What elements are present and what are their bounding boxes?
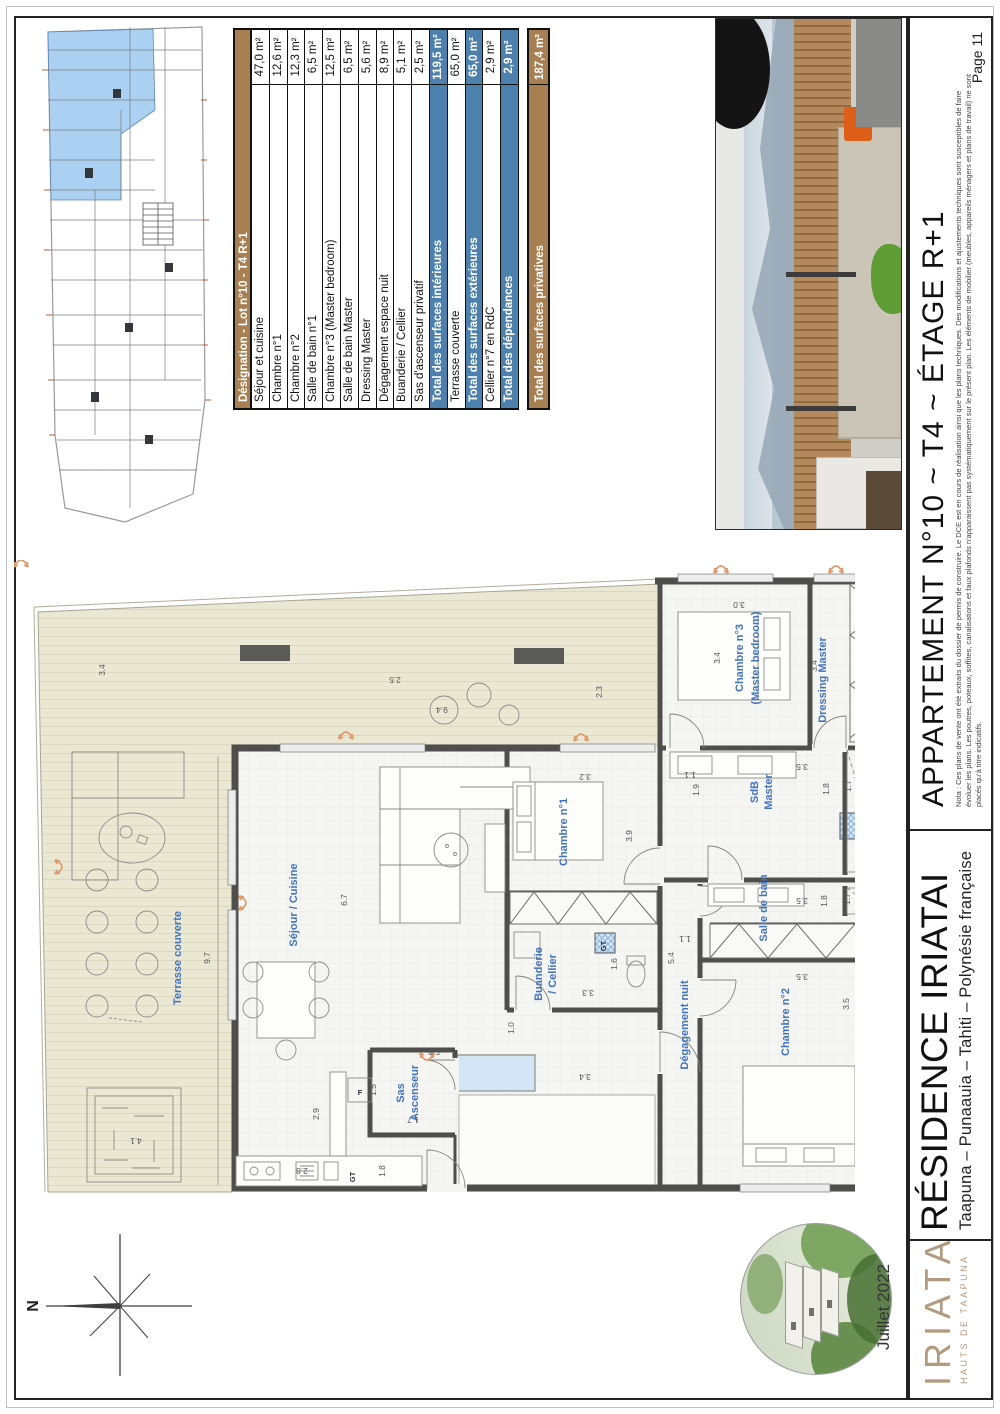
surface-row-label: Chambre n°1 bbox=[270, 85, 287, 408]
rotated-sheet: N Désignation - Lot n°10 - T4 R+1 Séjour… bbox=[0, 0, 1000, 1414]
date-label: Juillet 2022 bbox=[874, 1264, 894, 1350]
room-label: Chambre n°1 bbox=[558, 798, 570, 866]
surface-table-row: Terrasse couverte65,0 m² bbox=[448, 28, 466, 410]
apartment-title: APPARTEMENT N°10 ~ T4 ~ ÉTAGE R+1 bbox=[917, 18, 951, 807]
surface-table-row: Dressing Master5,6 m² bbox=[359, 28, 377, 410]
dimension-label: 6.7 bbox=[339, 894, 349, 906]
nota-line: placés qu'à titre indicatifs. bbox=[974, 62, 984, 807]
surface-table-row: Total des dépendances2,9 m² bbox=[501, 28, 519, 410]
surface-row-label: Dressing Master bbox=[359, 85, 376, 408]
surface-row-value: 12,3 m² bbox=[288, 30, 305, 85]
iriatai-logo-subtitle: HAUTS DE TAAPUNA bbox=[959, 1241, 969, 1384]
dimension-label: 1.7 bbox=[843, 780, 853, 792]
surface-table-rows: Séjour et cuisine47,0 m²Chambre n°112,6 … bbox=[252, 28, 550, 410]
room-label: Dressing Master bbox=[817, 636, 829, 722]
surface-row-value: 2,9 m² bbox=[483, 30, 500, 85]
surface-row-value: 187,4 m² bbox=[529, 30, 548, 85]
apartment-title-box: APPARTEMENT N°10 ~ T4 ~ ÉTAGE R+1 Nota :… bbox=[908, 16, 993, 831]
dimension-label: 3.2 bbox=[579, 772, 591, 782]
dimension-label: 4.1 bbox=[130, 1136, 142, 1146]
tag-label: GT bbox=[854, 823, 855, 834]
surface-table-row: Dégagement espace nuit8,9 m² bbox=[377, 28, 395, 410]
surface-table-row: Chambre n°112,6 m² bbox=[270, 28, 288, 410]
dimension-label: 1.0 bbox=[506, 1022, 516, 1034]
tag-label: GT bbox=[348, 1171, 357, 1182]
room-label: Salle de bain bbox=[758, 874, 770, 942]
floor-plan-svg: Séjour / CuisineChambre n°1Buanderie/ Ce… bbox=[14, 560, 855, 1215]
surface-row-label: Séjour et cuisine bbox=[252, 85, 269, 408]
elevator-shaft bbox=[455, 1055, 535, 1091]
surface-row-value: 12,5 m² bbox=[323, 30, 340, 85]
surface-row-label: Chambre n°2 bbox=[288, 85, 305, 408]
dimension-label: 3.9 bbox=[624, 830, 634, 842]
dimension-label: 2.8 bbox=[296, 1166, 308, 1176]
north-label: N bbox=[25, 1300, 42, 1312]
room-label: Master bbox=[763, 774, 775, 810]
surface-row-label: Sas d'ascenseur privatif bbox=[412, 85, 429, 408]
page-number: Page 11 bbox=[969, 32, 985, 83]
dimension-label: 9.4 bbox=[436, 705, 448, 715]
dimension-label: 1.7 bbox=[407, 1115, 419, 1125]
dimension-label: 1.1 bbox=[679, 934, 691, 944]
surface-table-row: Séjour et cuisine47,0 m² bbox=[252, 28, 270, 410]
dimension-label: 2.5 bbox=[389, 675, 401, 685]
nota-line: évoluer les plans. Les poutres, poteaux,… bbox=[964, 62, 974, 807]
surface-table-row: Salle de bain n°16,5 m² bbox=[305, 28, 323, 410]
surface-row-value: 6,5 m² bbox=[305, 30, 322, 85]
surface-row-value: 6,5 m² bbox=[341, 30, 358, 85]
residence-title-box: RÉSIDENCE IRIATAI Taapuna – Punaauia – T… bbox=[908, 829, 993, 1241]
dimension-label: 1.8 bbox=[819, 895, 829, 907]
surface-row-value: 5,6 m² bbox=[359, 30, 376, 85]
dimension-label: 1.1 bbox=[684, 770, 696, 780]
terrace-render-photo bbox=[715, 18, 902, 530]
dimension-label: 2.9 bbox=[311, 1108, 321, 1120]
dimension-label: 3.5 bbox=[796, 762, 808, 772]
room-label: Buanderie bbox=[533, 947, 545, 1001]
dimension-label: 3.4 bbox=[579, 1072, 591, 1082]
surface-row-value: 65,0 m² bbox=[448, 30, 465, 85]
nota-line: Nota : Ces plans de vente ont été extrai… bbox=[954, 62, 964, 807]
surface-table-row: Total des surfaces intérieures119,5 m² bbox=[430, 28, 448, 410]
room-label: (Master bedroom) bbox=[750, 611, 762, 704]
dimension-label: 1.9 bbox=[691, 784, 701, 796]
dimension-label: 1.5 bbox=[368, 1084, 378, 1096]
exterior-landing bbox=[459, 1095, 655, 1188]
surface-row-value: 12,6 m² bbox=[270, 30, 287, 85]
dimension-label: 5.4 bbox=[666, 952, 676, 964]
room-label: Terrasse couverte bbox=[172, 911, 184, 1005]
dimension-label: 3.4 bbox=[809, 660, 819, 672]
dimension-label: 2.3 bbox=[594, 686, 604, 698]
surface-row-label: Chambre n°3 (Master bedroom) bbox=[323, 85, 340, 408]
dimension-label: 3.4 bbox=[97, 664, 107, 676]
iriatai-logo: IRIATAI bbox=[920, 1241, 956, 1386]
photo-wood-table bbox=[866, 471, 901, 529]
surface-row-value: 5,1 m² bbox=[394, 30, 411, 85]
surface-table-row: Cellier n°7 en RdC2,9 m² bbox=[483, 28, 501, 410]
dimension-label: 3.5 bbox=[796, 972, 808, 982]
room-label: SdB bbox=[749, 781, 761, 803]
surface-table-row: Sas d'ascenseur privatif2,5 m² bbox=[412, 28, 430, 410]
photo-railing-post bbox=[786, 272, 856, 277]
nota-text: Nota : Ces plans de vente ont été extrai… bbox=[954, 62, 983, 807]
room-label: Séjour / Cuisine bbox=[288, 863, 300, 946]
drawing-sheet-page: N Désignation - Lot n°10 - T4 R+1 Séjour… bbox=[0, 0, 1000, 1414]
surface-row-label: Cellier n°7 en RdC bbox=[483, 85, 500, 408]
dimension-label: 9.7 bbox=[202, 952, 212, 964]
dimension-label: 3.0 bbox=[733, 600, 745, 610]
room-label: / Cellier bbox=[547, 953, 559, 993]
surface-row-label: Total des surfaces privatives bbox=[529, 85, 548, 408]
north-compass: N bbox=[20, 1224, 195, 1394]
surface-row-label: Dégagement espace nuit bbox=[377, 85, 394, 408]
surface-table-row: Total des surfaces privatives187,4 m² bbox=[527, 28, 550, 410]
dimension-label: 3.5 bbox=[841, 998, 851, 1010]
dimension-label: 1.8 bbox=[377, 1165, 387, 1177]
dimension-label: 3.5 bbox=[796, 896, 808, 906]
surface-row-value: 119,5 m² bbox=[430, 30, 447, 85]
surface-table-row: Total des surfaces extérieures65,0 m² bbox=[466, 28, 484, 410]
dimension-label: 5.8 bbox=[428, 1047, 440, 1057]
surface-row-label: Buanderie / Cellier bbox=[394, 85, 411, 408]
residence-vignette bbox=[740, 1223, 892, 1375]
floor-plan-area: Séjour / CuisineChambre n°1Buanderie/ Ce… bbox=[14, 560, 855, 1215]
dimension-label: 1.7 bbox=[842, 893, 852, 905]
photo-railing-post bbox=[786, 406, 856, 411]
tag-label: F bbox=[358, 1088, 363, 1097]
surface-table-header: Désignation - Lot n°10 - T4 R+1 bbox=[233, 28, 252, 410]
surface-table: Désignation - Lot n°10 - T4 R+1 Séjour e… bbox=[233, 28, 550, 410]
room-label: Ascenseur bbox=[409, 1064, 421, 1121]
room-label: Dégagement nuit bbox=[679, 980, 691, 1070]
site-key-plan bbox=[25, 20, 215, 530]
surface-table-row: Salle de bain Master6,5 m² bbox=[341, 28, 359, 410]
surface-row-label: Total des surfaces extérieures bbox=[466, 85, 483, 408]
dimension-label: 1.8 bbox=[821, 783, 831, 795]
surface-row-label: Salle de bain Master bbox=[341, 85, 358, 408]
residence-name: RÉSIDENCE IRIATAI bbox=[916, 831, 955, 1231]
surface-row-value: 8,9 m² bbox=[377, 30, 394, 85]
photo-cabinet bbox=[856, 19, 901, 127]
room-label: Sas bbox=[395, 1083, 407, 1103]
residence-location: Taapuna – Punaauia – Tahiti – Polynésie … bbox=[957, 831, 976, 1230]
surface-row-value: 2,9 m² bbox=[501, 30, 518, 85]
logo-box: IRIATAI HAUTS DE TAAPUNA bbox=[908, 1239, 993, 1400]
surface-row-label: Salle de bain n°1 bbox=[305, 85, 322, 408]
tag-label: GT bbox=[599, 940, 608, 951]
surface-table-row: Buanderie / Cellier5,1 m² bbox=[394, 28, 412, 410]
surface-table-row: Chambre n°3 (Master bedroom)12,5 m² bbox=[323, 28, 341, 410]
surface-row-label: Terrasse couverte bbox=[448, 85, 465, 408]
surface-row-label: Total des surfaces intérieures bbox=[430, 85, 447, 408]
surface-row-label: Total des dépendances bbox=[501, 85, 518, 408]
dimension-label: 1.6 bbox=[609, 958, 619, 970]
surface-table-gap bbox=[519, 28, 527, 410]
dimension-label: 3.3 bbox=[582, 988, 594, 998]
surface-row-value: 2,5 m² bbox=[412, 30, 429, 85]
surface-row-value: 47,0 m² bbox=[252, 30, 269, 85]
room-label: Chambre n°2 bbox=[780, 988, 792, 1056]
room-label: Chambre n°3 bbox=[734, 624, 746, 692]
surface-table-row: Chambre n°212,3 m² bbox=[288, 28, 306, 410]
dimension-label: 3.4 bbox=[712, 652, 722, 664]
surface-row-value: 65,0 m² bbox=[466, 30, 483, 85]
